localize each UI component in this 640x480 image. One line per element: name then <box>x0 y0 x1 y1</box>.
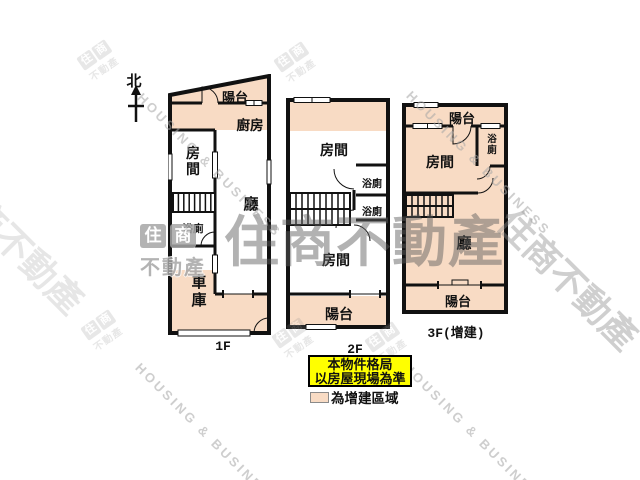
faint-logo-char: 住 <box>80 319 102 340</box>
room-label-room-3f: 房間 <box>420 152 460 172</box>
faint-logo-watermark: 住商 不動產 <box>76 39 122 84</box>
legend-extension-label: 為增建區域 <box>331 387 399 407</box>
legend-extension-swatch <box>310 392 329 403</box>
floor-name-1f: 1F <box>203 339 243 354</box>
faint-logo-char: 商 <box>91 39 113 60</box>
faint-logo-char: 住 <box>76 49 98 70</box>
room-label-kitchen-1f: 廚房 <box>230 114 270 134</box>
room-label-room-bottom-2f: 房間 <box>316 250 356 270</box>
disclaimer-note-box: 本物件格局 以房屋現場為準 <box>308 355 412 387</box>
brand-logo-char2: 商 <box>170 224 196 248</box>
brand-logo-subtext: 不動產 <box>140 251 206 280</box>
room-label-room-1f: 房 間 <box>181 145 205 177</box>
watermark-brand-diagonal-left: 住商不動產 <box>0 160 97 324</box>
disclaimer-line2: 以房屋現場為準 <box>310 372 410 386</box>
room-label-balcony-bottom-3f: 陽台 <box>438 291 478 310</box>
watermark-housing-text-3: HOUSING & BUSINESS <box>132 360 282 480</box>
room-label-room-top-2f: 房間 <box>314 140 354 160</box>
room-label-bath1-2f: 浴廁 <box>356 175 388 190</box>
faint-logo-subtext: 不動產 <box>282 54 318 86</box>
faint-logo-watermark: 住商 不動產 <box>273 41 319 86</box>
faint-logo-char: 商 <box>95 309 117 330</box>
floorplan-1f: 陽台 廚房 房 間 廳 浴廁 車 庫 <box>168 74 274 340</box>
room-label-living-1f: 廳 <box>236 193 266 214</box>
watermark-housing-text-4: HOUSING & BUSINESS <box>400 360 550 480</box>
stairs-1f <box>173 193 215 212</box>
floorplan-image: 北 <box>0 0 640 480</box>
floor-name-3f: 3F(增建) <box>412 322 500 341</box>
disclaimer-line1: 本物件格局 <box>310 358 410 372</box>
floorplan-2f: 房間 浴廁 浴廁 房間 陽台 <box>286 96 392 336</box>
faint-logo-char: 商 <box>288 41 310 62</box>
room-label-living-3f: 廳 <box>449 232 479 253</box>
room-label-balcony-2f: 陽台 <box>319 304 359 324</box>
room-label-bath2-2f: 浴廁 <box>356 203 388 218</box>
brand-logo-char1: 住 <box>140 224 166 248</box>
faint-logo-watermark: 住商 不動產 <box>80 309 126 354</box>
room-label-bath-3f: 浴 廁 <box>483 134 501 156</box>
brand-logo-watermark: 住 商 不動產 <box>140 224 206 280</box>
north-arrow-icon <box>127 85 145 125</box>
faint-logo-subtext: 不動產 <box>85 52 121 84</box>
room-label-balcony-top-3f: 陽台 <box>442 108 482 127</box>
faint-logo-char: 住 <box>273 51 295 72</box>
stairs-2f <box>290 193 350 225</box>
floorplan-3f: 陽台 浴 廁 房間 廳 陽台 <box>400 100 512 322</box>
room-label-balcony-1f: 陽台 <box>215 87 255 106</box>
faint-logo-subtext: 不動產 <box>89 322 125 354</box>
